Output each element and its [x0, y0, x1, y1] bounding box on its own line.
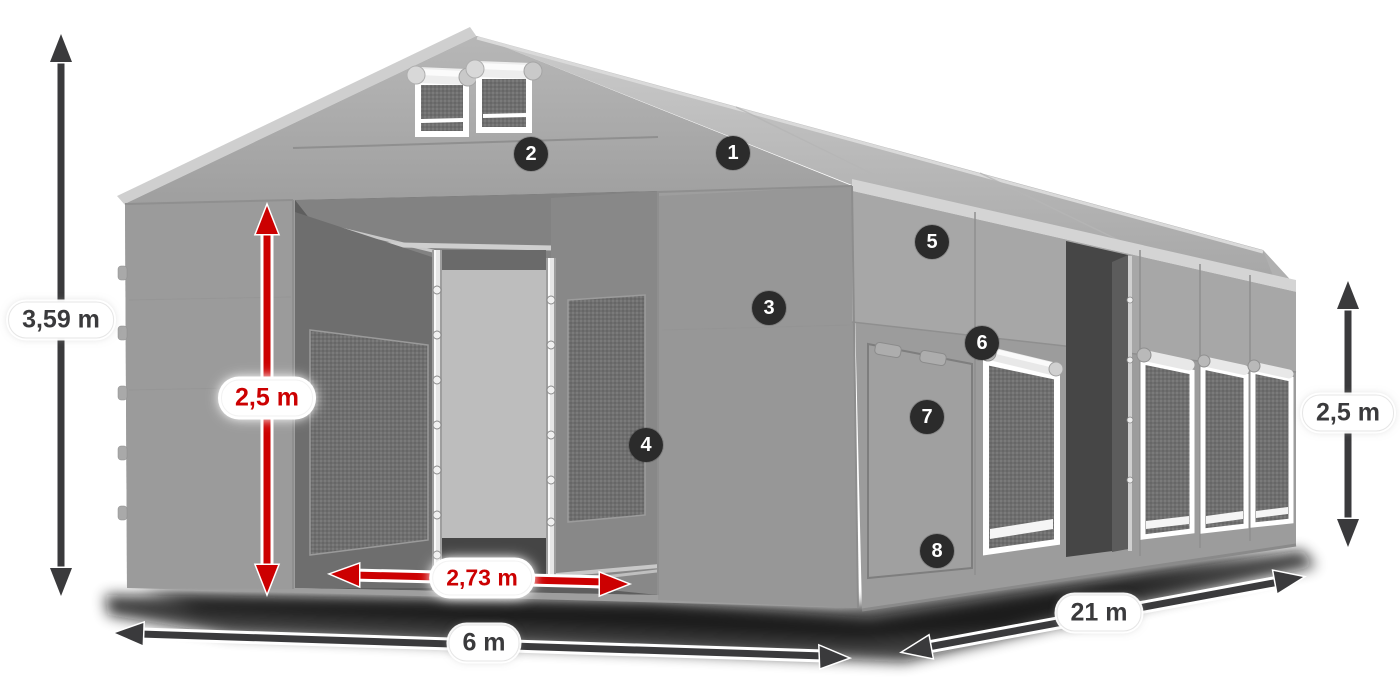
- side-sliding-door-opening: [1066, 241, 1133, 557]
- dimension-label-width: 6 m: [448, 625, 519, 662]
- side-entrance-door: [868, 342, 972, 578]
- dimension-label-side-height: 2,5 m: [1302, 395, 1394, 432]
- callout-badge-4: 4: [629, 428, 663, 462]
- callout-badge-3: 3: [752, 291, 786, 325]
- callout-badge-6: 6: [965, 326, 999, 360]
- dimension-label-total-height: 3,59 m: [8, 302, 114, 339]
- door-track-pole-right: [547, 258, 555, 586]
- tent-dimension-diagram: 3,59 m 2,5 m 2,73 m 6 m 21 m 2,5 m 1 2 3…: [0, 0, 1400, 700]
- side-window-2: [1137, 348, 1192, 537]
- callout-badge-2: 2: [514, 137, 548, 171]
- callout-badge-8: 8: [920, 534, 954, 568]
- front-right-column: [658, 186, 858, 608]
- side-window-1: [980, 345, 1063, 552]
- dimension-label-entrance-width: 2,73 m: [432, 561, 532, 596]
- callout-badge-5: 5: [915, 225, 949, 259]
- tent-illustration: [0, 0, 1400, 700]
- callout-badge-1: 1: [716, 136, 750, 170]
- side-window-4: [1248, 360, 1291, 525]
- door-track-pole-left: [433, 250, 441, 590]
- dimension-label-length: 21 m: [1057, 595, 1142, 632]
- callout-badge-7: 7: [910, 400, 944, 434]
- gable-vent-left: [407, 66, 477, 134]
- gable-vent-right: [466, 60, 542, 130]
- interior-far-opening: [442, 268, 546, 540]
- dimension-label-entrance-height: 2,5 m: [221, 380, 313, 417]
- side-window-3: [1198, 355, 1246, 531]
